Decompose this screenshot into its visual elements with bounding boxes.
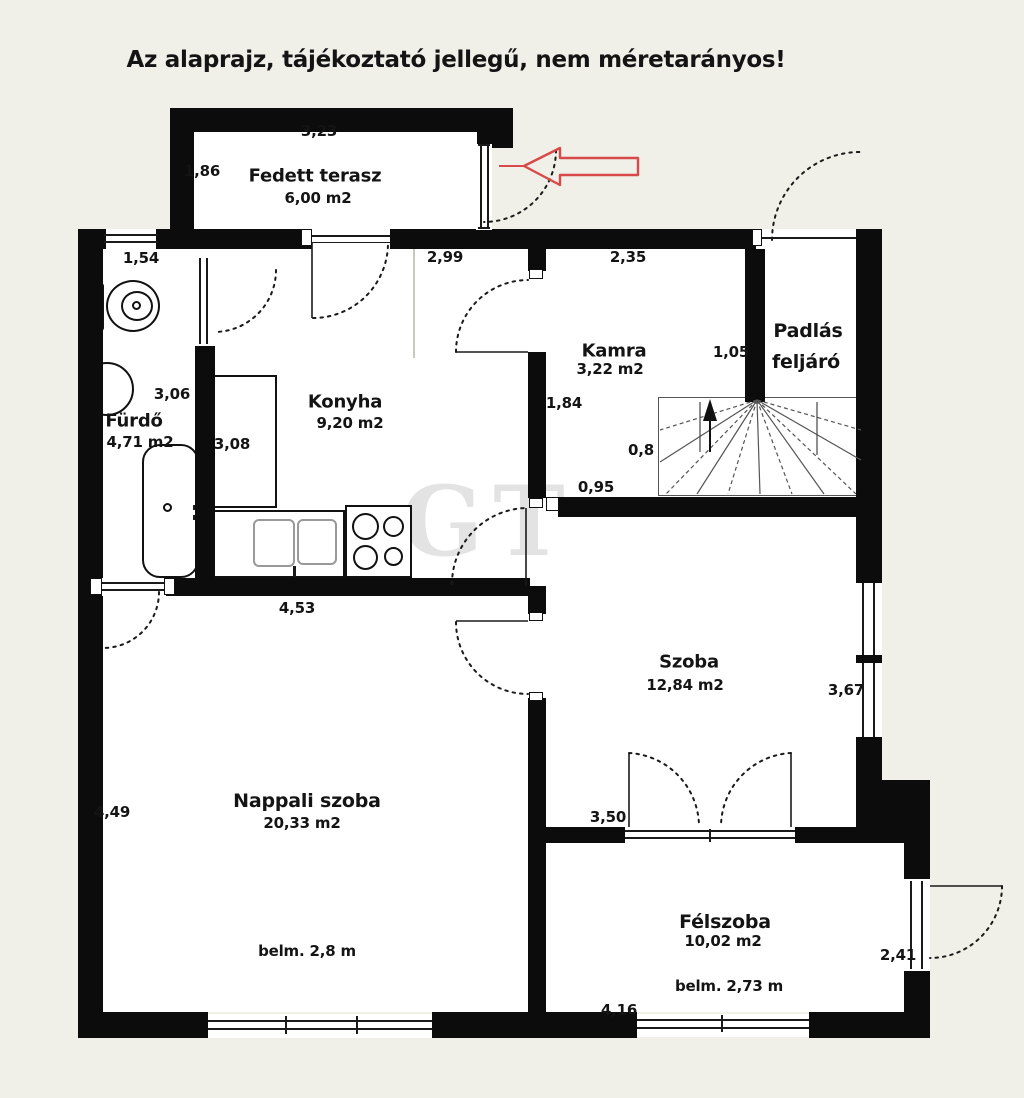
wall-halfroom-top-right (795, 827, 930, 843)
wall-right-window-mullion (856, 655, 882, 663)
dim-living-left: 4,49 (94, 803, 130, 821)
door-terrace-kitchen (312, 229, 390, 249)
window-room-1 (856, 583, 882, 655)
plan-disclaimer-title: Az alaprajz, tájékoztató jellegű, nem mé… (127, 47, 786, 73)
room-area-kitchen: 9,20 m2 (317, 414, 384, 432)
entrance-door-arc (484, 150, 556, 222)
door-threshold (102, 582, 164, 584)
stairs (658, 397, 863, 496)
dim-bath-height: 3,06 (154, 385, 190, 403)
door-jamb (546, 497, 559, 511)
door-leaf-line (199, 258, 201, 344)
door-center-tick (709, 829, 711, 842)
wall-terrace-right-stub (477, 108, 513, 148)
door-jamb (529, 612, 543, 621)
wall-inner-v3 (528, 586, 546, 614)
door-jamb (529, 269, 543, 279)
window-room-2 (856, 663, 882, 737)
window-line (862, 663, 864, 737)
window-line (873, 583, 875, 655)
room-area-halfroom: 10,02 m2 (684, 932, 761, 950)
door-threshold (312, 242, 390, 243)
room-area-room: 12,84 m2 (646, 676, 723, 694)
door-bathroom-lower (102, 578, 164, 596)
window-tick (721, 1015, 723, 1032)
wall-bottom-1 (78, 1012, 208, 1038)
attic-door-arc (772, 152, 860, 240)
dim-kitchen-width: 4,53 (279, 599, 315, 617)
room-area-living: 20,33 m2 (263, 814, 340, 832)
dim-kitchen-height: 3,08 (214, 435, 250, 453)
burner-3 (353, 545, 378, 570)
door-jamb (752, 229, 762, 246)
kitchen-sink-right (297, 519, 337, 565)
wall-top-2 (154, 229, 312, 249)
window-line (104, 241, 158, 243)
door-cap (478, 227, 490, 229)
door-threshold (756, 237, 856, 239)
window-halfroom (637, 1014, 809, 1037)
dim-room-right: 3,67 (828, 681, 864, 699)
room-area-bathroom: 4,71 m2 (107, 433, 174, 451)
room-label-attic-1: Padlás (773, 320, 842, 342)
window-tick (356, 1016, 358, 1034)
room-ceiling-living: belm. 2,8 m (258, 942, 356, 960)
room-label-terrace: Fedett terasz (249, 166, 382, 187)
window-line (637, 1027, 809, 1029)
dim-terrace-width: 3,23 (301, 122, 337, 140)
burner-1 (352, 513, 379, 540)
kitchen-sink-left (253, 519, 295, 567)
dim-pantry-top: 2,35 (610, 248, 646, 266)
door-cap (478, 144, 490, 146)
wall-inner-v1 (528, 249, 546, 271)
wall-right-outcrop (862, 780, 930, 828)
window-living (208, 1014, 432, 1038)
wall-under-stairs (558, 497, 880, 517)
door-jamb (164, 578, 175, 595)
window-tick (285, 1016, 287, 1034)
room-area-pantry: 3,22 m2 (577, 360, 644, 378)
dim-corridor: 0,95 (578, 478, 614, 496)
door-bathroom-upper (195, 256, 215, 346)
dim-halfroom-door: 2,41 (880, 946, 916, 964)
kitchen-sink-tap (293, 566, 296, 577)
wall-pantry-attic (745, 249, 765, 402)
burner-4 (384, 547, 403, 566)
dim-terrace-depth: 1,86 (184, 162, 220, 180)
halfroom-extension-floor (856, 843, 904, 1012)
room-label-living: Nappali szoba (233, 790, 381, 812)
wall-top-4 (540, 229, 756, 249)
window-line (104, 234, 158, 236)
dim-bath-window: 1,54 (123, 249, 159, 267)
dim-stair-width: 0,8 (628, 441, 654, 459)
window-line (637, 1019, 809, 1021)
wall-bath-kitchen (195, 344, 215, 580)
room-label-bathroom: Fürdő (105, 411, 162, 432)
door-leaf-line (206, 258, 208, 344)
wall-halfroom-right-2 (904, 971, 930, 1038)
door-threshold (102, 589, 164, 591)
bathtub-drain (163, 503, 172, 512)
room-label-halfroom: Félszoba (679, 911, 771, 933)
window-line (208, 1028, 432, 1030)
dim-pantry-left: 1,84 (546, 394, 582, 412)
wall-kitchen-bottom (166, 578, 530, 596)
wall-inner-v2 (528, 352, 546, 498)
house-floor (103, 249, 856, 1012)
dim-kitchen-top: 2,99 (427, 248, 463, 266)
entrance-door (476, 144, 492, 230)
room-label-attic-2: feljáró (772, 351, 840, 373)
window-line (208, 1020, 432, 1022)
burner-2 (383, 516, 404, 537)
floor-plan: Az alaprajz, tájékoztató jellegű, nem mé… (0, 0, 1024, 1098)
dim-attic-width: 1,05 (713, 343, 749, 361)
room-ceiling-halfroom: belm. 2,73 m (675, 977, 783, 995)
wall-halfroom-right-1 (904, 843, 930, 879)
window-line (873, 663, 875, 737)
wall-right-upper (856, 229, 882, 583)
window-bath-top (106, 229, 156, 249)
wall-inner-v4 (528, 698, 546, 1012)
room-label-kitchen: Konyha (308, 392, 382, 413)
wall-left (78, 229, 103, 1038)
door-jamb (301, 229, 312, 246)
room-area-terrace: 6,00 m2 (285, 189, 352, 207)
wall-top-3 (390, 229, 540, 249)
kitchen-hall-divider-line (413, 246, 415, 358)
toilet-drain (132, 301, 141, 310)
door-jamb (529, 498, 543, 508)
door-leaf-line (487, 146, 489, 228)
room-label-room: Szoba (659, 652, 719, 673)
door-threshold (312, 235, 390, 237)
door-attic-exterior (756, 229, 856, 249)
dim-halfroom-top: 3,50 (590, 808, 626, 826)
door-jamb (90, 578, 102, 595)
door-leaf-line (480, 146, 482, 228)
window-line (862, 583, 864, 655)
dim-halfroom-bottom: 4,16 (601, 1001, 637, 1019)
room-label-pantry: Kamra (582, 341, 647, 362)
entrance-arrow-icon (499, 148, 638, 185)
door-jamb (529, 692, 543, 701)
wall-halfroom-top-left (546, 827, 625, 843)
bathtub (142, 444, 199, 578)
door-leaf-line (921, 881, 923, 969)
halfroom-exterior-door-arc (930, 886, 1002, 958)
